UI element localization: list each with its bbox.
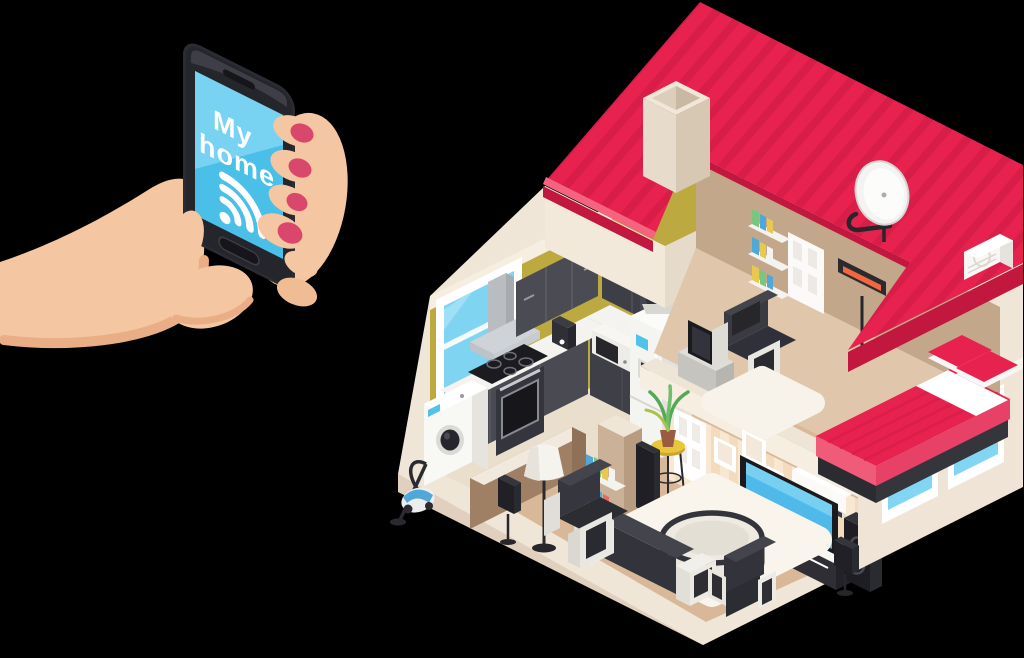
chimney (643, 81, 710, 193)
hand-with-phone: My home (0, 37, 361, 344)
illustration-canvas: My home (0, 0, 1024, 658)
smart-home-illustration: My home (0, 0, 1024, 658)
bedroom-rug (712, 377, 814, 428)
isometric-house (390, 2, 1023, 645)
